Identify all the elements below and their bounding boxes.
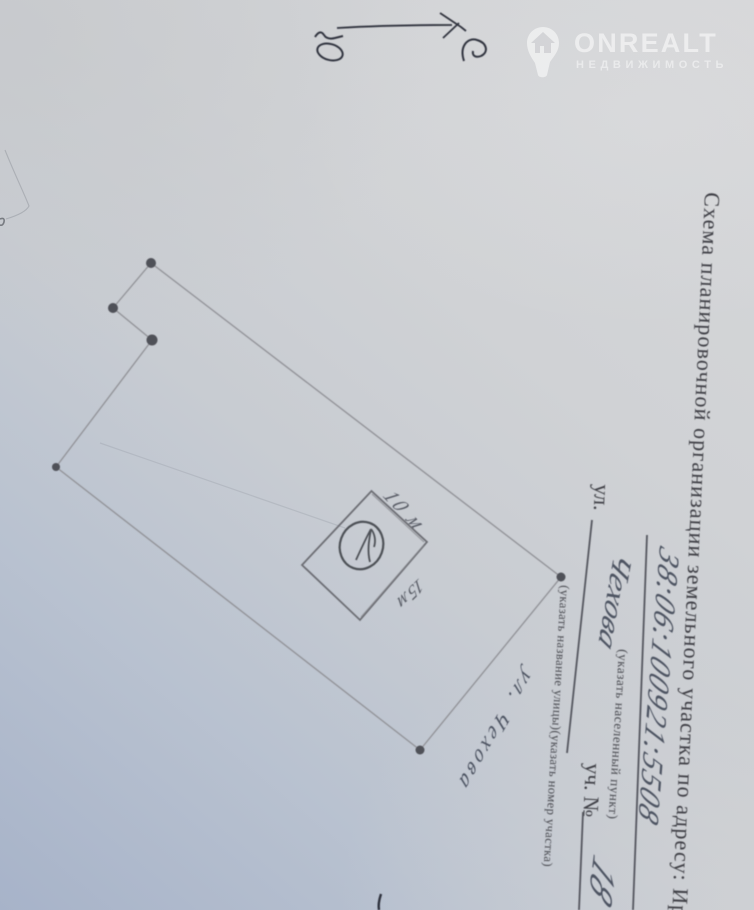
svg-text:ул.: ул. — [589, 484, 615, 512]
svg-text:НЕДВИЖИМОСТЬ: НЕДВИЖИМОСТЬ — [576, 59, 728, 71]
svg-text:ONREALT: ONREALT — [574, 28, 718, 58]
svg-text:уч. №: уч. № — [578, 763, 606, 818]
